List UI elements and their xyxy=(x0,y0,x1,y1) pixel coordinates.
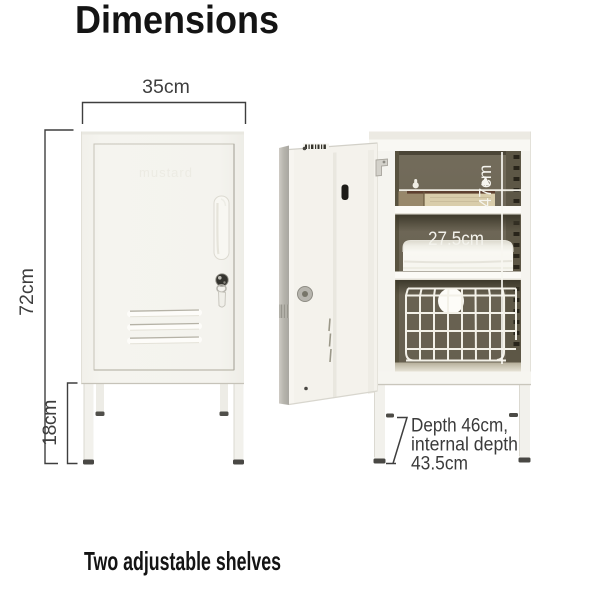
svg-text:35cm: 35cm xyxy=(142,76,190,98)
svg-text:47cm: 47cm xyxy=(475,165,495,208)
svg-text:72cm: 72cm xyxy=(16,268,38,316)
svg-text:18cm: 18cm xyxy=(39,400,61,446)
svg-text:27.5cm: 27.5cm xyxy=(428,229,484,250)
svg-text:internal depth: internal depth xyxy=(411,435,518,456)
svg-text:mustard: mustard xyxy=(139,165,193,180)
svg-text:Depth 46cm,: Depth 46cm, xyxy=(411,416,508,437)
svg-text:43.5cm: 43.5cm xyxy=(411,454,468,475)
svg-text:Two adjustable shelves: Two adjustable shelves xyxy=(84,546,281,576)
svg-text:Dimensions: Dimensions xyxy=(75,0,279,42)
